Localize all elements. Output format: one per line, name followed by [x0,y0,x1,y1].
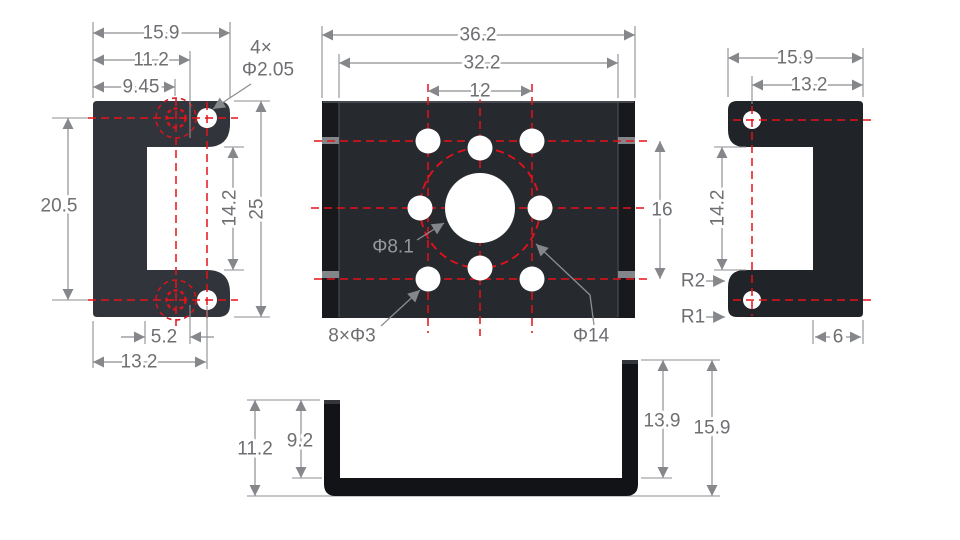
left-side-view: 15.9 11.2 9.45 20.5 14.2 25 5.2 13.2 4× … [41,22,295,373]
dim-left-offset: 5.2 [151,327,177,348]
front-view-right-flange-edge [618,101,635,318]
dim-right-notch-height: 14.2 [708,190,729,227]
dim-right-hole-width: 13.2 [791,75,828,96]
dim-bottom-outer-left: 11.2 [237,439,273,460]
right-view-part-body [728,101,863,317]
dim-front-hole-span-x: 12 [469,81,490,102]
center-hole-label: Φ8.1 [372,237,414,258]
pattern-holes-label: 8×Φ3 [328,326,375,347]
left-view-part-body [93,101,230,317]
dim-left-hole-inner: 11.2 [133,50,169,71]
callout-count-label: 4× [250,38,272,59]
right-side-view: 15.9 13.2 14.2 6 R2 R1 [681,48,872,348]
dim-left-total-height: 25 [247,198,268,219]
right-view-radius-callouts: R2 R1 [681,271,725,328]
dim-left-hole-outer: 13.2 [121,352,158,373]
center-shaft-hole [445,173,515,243]
dim-bottom-outer-right: 15.9 [694,418,731,439]
left-view-dimensions: 15.9 11.2 9.45 20.5 14.2 25 5.2 13.2 [41,23,268,373]
dim-bottom-inner-left: 9.2 [287,431,313,452]
dim-left-total-width: 15.9 [143,23,180,44]
callout-diameter-label: Φ2.05 [242,60,294,81]
bolt-circle-label: Φ14 [573,326,610,347]
radius-r2-label: R2 [681,271,705,292]
dim-left-notch-height: 14.2 [220,190,241,227]
dim-right-wall: 6 [833,327,844,348]
bottom-view: 11.2 9.2 13.9 15.9 [237,360,730,496]
bottom-view-part-body [324,360,638,496]
engineering-drawing: 15.9 11.2 9.45 20.5 14.2 25 5.2 13.2 4× … [0,0,960,540]
bottom-view-dimensions: 11.2 9.2 13.9 15.9 [237,360,730,496]
dim-front-hole-span-y: 16 [651,200,672,221]
front-view: 36.2 32.2 12 16 Φ8.1 8×Φ3 Φ14 [311,25,673,347]
front-view-left-flange-edge [322,101,339,318]
dim-left-hole-span: 20.5 [41,196,78,217]
left-wall-top-edge [324,400,340,404]
dim-bottom-inner-right: 13.9 [644,411,681,432]
dim-right-total-width: 15.9 [777,48,814,69]
radius-r1-label: R1 [681,307,705,328]
left-view-hole-callout: 4× Φ2.05 [213,38,294,110]
right-wall-top-edge [622,360,638,364]
dim-front-inner-width: 32.2 [464,53,501,74]
dim-left-hidden: 9.45 [123,77,160,98]
dim-front-total-width: 36.2 [460,25,497,46]
